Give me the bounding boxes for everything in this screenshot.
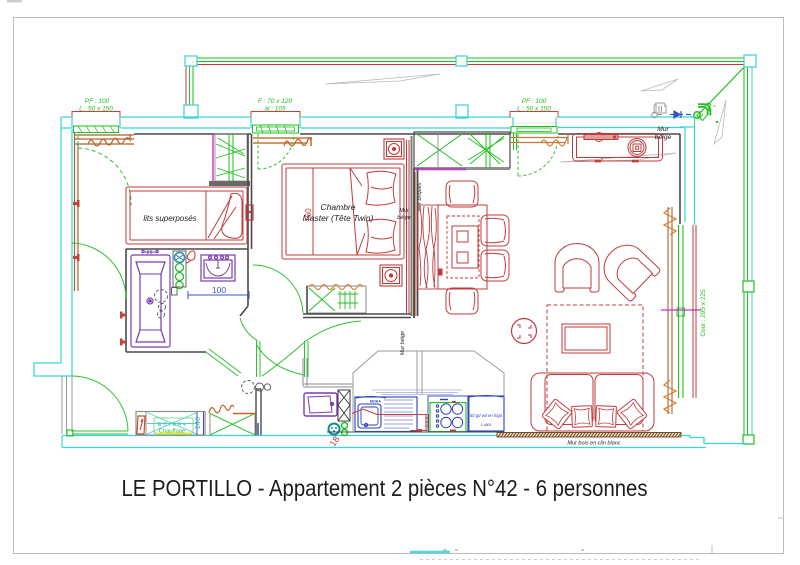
svg-text:L : 50 x 150: L : 50 x 150	[79, 106, 113, 113]
svg-text:L : 50 x 150: L : 50 x 150	[517, 106, 551, 113]
svg-text:MOKA: MOKA	[370, 400, 381, 404]
svg-text:140: 140	[193, 417, 202, 430]
svg-text:Mur: Mur	[657, 126, 669, 133]
svg-text:1-4800: 1-4800	[481, 423, 492, 427]
svg-text:LE PORTILLO - Appartement 2 pi: LE PORTILLO - Appartement 2 pièces N°42 …	[122, 475, 648, 501]
svg-text:Mur bois en clin blanc: Mur bois en clin blanc	[567, 441, 620, 447]
svg-text:60 gd vol en frigo: 60 gd vol en frigo	[470, 413, 503, 418]
svg-text:béige: béige	[655, 134, 672, 141]
svg-text:160: 160	[304, 208, 313, 222]
svg-text:lits superposés: lits superposés	[143, 214, 196, 223]
svg-text:Mur béige: Mur béige	[400, 331, 406, 355]
svg-text:Mur: Mur	[399, 208, 410, 214]
svg-text:Master (Tête Twin): Master (Tête Twin)	[303, 213, 374, 223]
svg-text:100: 100	[212, 285, 226, 295]
svg-text:PF : 100: PF : 100	[522, 98, 547, 105]
svg-text:F : 70 x 120: F : 70 x 120	[258, 98, 293, 105]
svg-text:al : 105: al : 105	[264, 106, 286, 113]
svg-text:PF : 100: PF : 100	[85, 98, 110, 105]
svg-text:Coul : 295 x 225: Coul : 295 x 225	[700, 289, 707, 337]
svg-text:béige: béige	[397, 215, 410, 221]
svg-text:E C / E F +: E C / E F +	[158, 422, 187, 428]
svg-text:Chambre: Chambre	[321, 202, 356, 212]
